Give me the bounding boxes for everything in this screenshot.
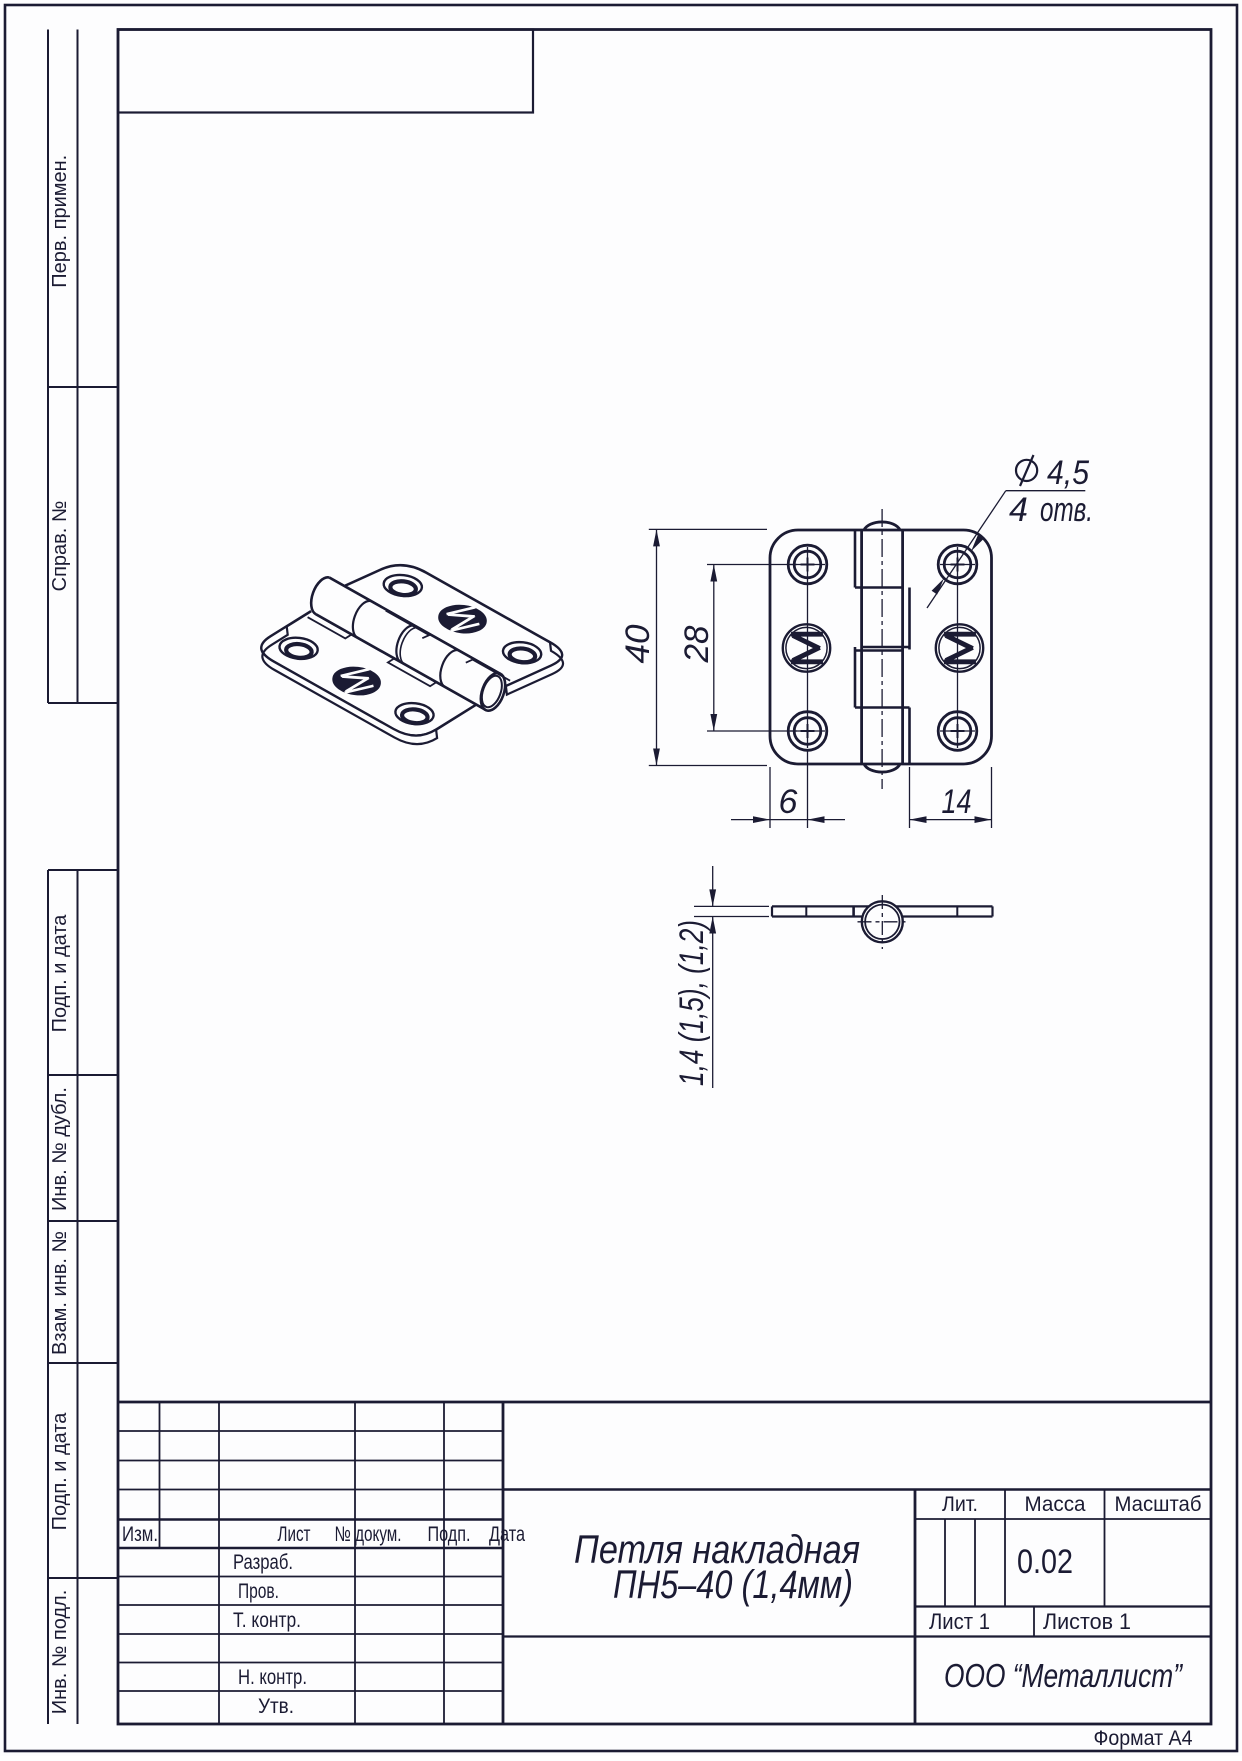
svg-text:Инв. № дубл.: Инв. № дубл. [49,1087,71,1211]
svg-text:Лит.: Лит. [942,1493,978,1516]
svg-text:0.02: 0.02 [1017,1543,1073,1581]
svg-text:Изм.: Изм. [122,1523,158,1546]
svg-text:ООО “Металлист”: ООО “Металлист” [944,1657,1184,1694]
svg-text:14: 14 [942,783,972,821]
svg-text:28: 28 [678,625,716,663]
svg-text:Т. контр.: Т. контр. [233,1609,301,1632]
svg-text:отв.: отв. [1040,491,1093,529]
svg-text:Взам. инв. №: Взам. инв. № [49,1231,71,1355]
svg-text:4,5: 4,5 [1047,454,1089,492]
svg-text:Лист 1: Лист 1 [929,1609,990,1634]
svg-text:Масса: Масса [1025,1493,1086,1516]
svg-text:4: 4 [1009,491,1028,529]
svg-text:40: 40 [619,624,657,663]
svg-text:Н. контр.: Н. контр. [238,1666,307,1689]
svg-text:Подп.: Подп. [428,1523,471,1546]
svg-text:ПН5–40 (1,4мм): ПН5–40 (1,4мм) [613,1563,853,1607]
svg-text:6: 6 [779,783,798,821]
svg-text:Справ. №: Справ. № [49,501,71,592]
svg-text:Подп. и дата: Подп. и дата [49,1412,71,1531]
svg-text:Утв.: Утв. [258,1695,294,1718]
svg-text:Формат А4: Формат А4 [1094,1727,1193,1750]
svg-text:Масштаб: Масштаб [1115,1493,1202,1516]
svg-text:Пров.: Пров. [238,1580,279,1603]
svg-text:Подп. и дата: Подп. и дата [49,914,71,1033]
svg-text:№ докум.: № докум. [335,1523,402,1546]
svg-text:Лист: Лист [278,1523,311,1546]
svg-text:Листов 1: Листов 1 [1043,1609,1131,1634]
svg-text:1,4 (1,5), (1,2): 1,4 (1,5), (1,2) [673,920,711,1086]
svg-text:Разраб.: Разраб. [233,1551,293,1574]
svg-text:Инв. № подл.: Инв. № подл. [49,1590,71,1715]
svg-text:Перв. примен.: Перв. примен. [49,155,71,288]
svg-text:Дата: Дата [489,1523,525,1546]
